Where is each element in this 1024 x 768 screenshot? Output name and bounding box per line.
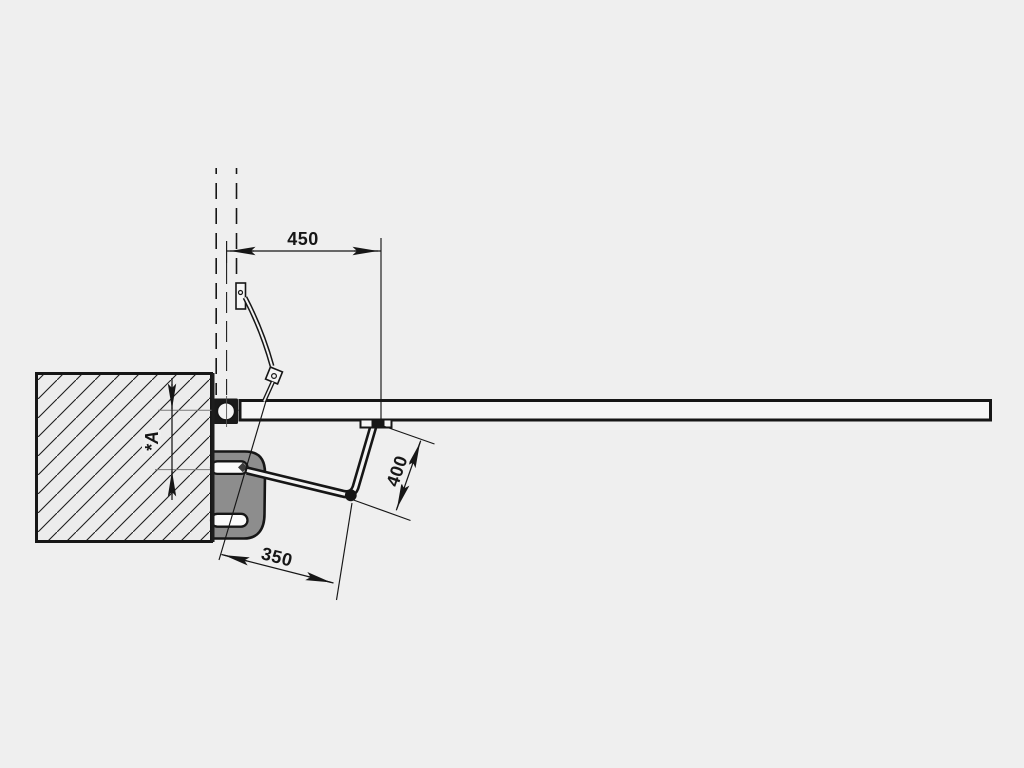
hinge-ball	[217, 403, 234, 420]
pillar-hatch-area	[37, 374, 212, 542]
dimension-label-setback: *A	[142, 430, 162, 451]
ghost-arm-elbow-housing	[266, 367, 283, 384]
articulated-arm-open-ghost	[236, 283, 282, 402]
dimension-label-400: 400	[382, 453, 411, 489]
arm-elbow-joint	[345, 489, 357, 501]
dimension-label-350: 350	[259, 543, 295, 570]
gate-hinge-bearing	[214, 396, 239, 427]
dimension-hinge-to-bracket: 450	[227, 229, 381, 423]
installation-diagram: *A 450 4	[0, 0, 1024, 768]
operator-body	[211, 373, 265, 542]
pillar-section	[37, 374, 212, 542]
gate-arm-bracket	[361, 420, 392, 428]
dimension-label-450: 450	[287, 229, 319, 249]
gate-leaf	[240, 401, 991, 421]
ghost-arm-shoulder-plate	[236, 283, 246, 309]
